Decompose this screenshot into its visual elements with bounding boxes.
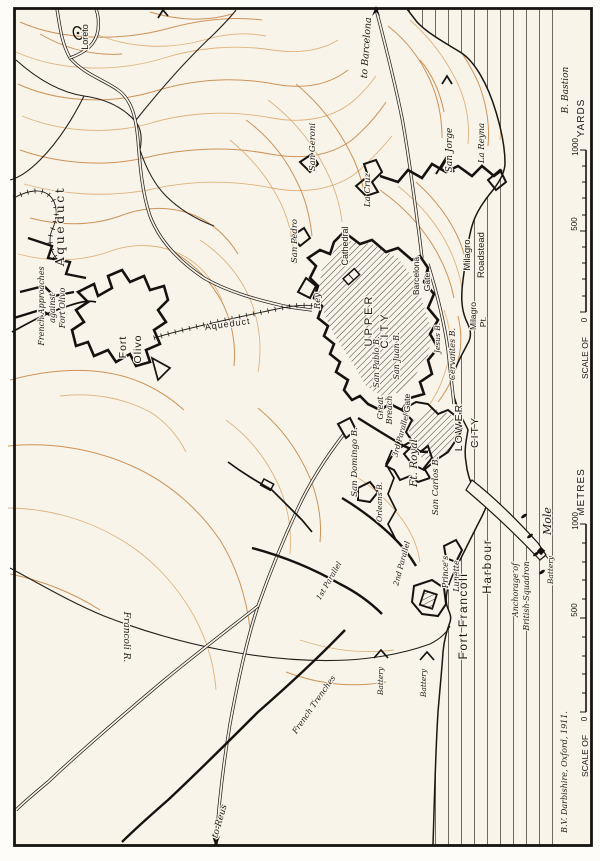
metres-tick-500: 500: [570, 603, 579, 617]
label-san-pedro: San Pedro: [290, 219, 300, 263]
label-harbour: Harbour: [482, 538, 494, 594]
map-plate: Loreto to Barcelona San Geroni San Pedro…: [0, 0, 600, 861]
tarragona-siege-map: Loreto to Barcelona San Geroni San Pedro…: [0, 0, 600, 861]
label-anchorage-1: Anchorage of: [511, 561, 520, 618]
label-ft-royal: Ft. Royal: [408, 439, 420, 488]
label-la-cruz: La Cruz: [363, 173, 373, 208]
yards-title: YARDS: [576, 99, 587, 138]
label-mole: Mole: [541, 507, 554, 536]
label-fort-francoli: Fort Francoli: [456, 573, 470, 660]
label-barcelona-gate-1: Barcelona: [411, 257, 421, 296]
label-milagro-pt-1: Milagro: [468, 302, 478, 330]
label-lower-city: CITY: [469, 416, 481, 448]
label-lower: LOWER: [453, 403, 465, 452]
metres-tick-0: 0: [580, 716, 589, 721]
metres-title: METRES: [576, 468, 587, 516]
label-battery-1: Battery: [376, 666, 385, 696]
label-jesus: Jesus B.: [433, 323, 442, 355]
label-gate: Gate: [402, 394, 412, 413]
label-cathedral: Cathedral: [340, 226, 350, 265]
label-battery-2: Battery: [419, 668, 428, 698]
yards-tick-1000: 1000: [571, 138, 580, 156]
label-francoli-river: Francoli R.: [121, 611, 131, 663]
label-cervantes: Cervantes B.: [448, 328, 457, 380]
label-great-breach-2: Breach: [385, 396, 394, 426]
label-rey: Rey: [313, 293, 323, 310]
label-san-jorge: San Jorge: [445, 128, 455, 173]
map-credit: B.V. Darbishire, Oxford, 1911.: [560, 711, 569, 834]
label-loreto: Loreto: [80, 24, 90, 50]
label-san-pablo: San Pablo B.: [372, 336, 381, 387]
yards-tick-0: 0: [580, 317, 589, 322]
metres-tick-1000: 1000: [571, 512, 580, 530]
label-san-carlos: San Carlos B.: [431, 457, 441, 516]
label-french-approaches-2: against: [48, 292, 57, 322]
label-milagro-roadstead-2: Roadstead: [476, 232, 487, 278]
label-san-geroni: San Geroni: [308, 123, 318, 172]
label-fort-olivo-1: Fort: [117, 336, 129, 359]
label-battery-mole: Battery: [546, 555, 555, 585]
yards-tick-500: 500: [570, 217, 579, 231]
label-milagro-pt-2: Pt.: [478, 317, 488, 327]
loreto-chapel-dot: [77, 32, 80, 35]
metres-scale-label: SCALE OF: [580, 735, 590, 777]
label-fort-olivo-2: Olivo: [132, 335, 144, 364]
label-milagro-roadstead-1: Milagro: [462, 239, 473, 270]
label-legend-note: B. Bastion: [561, 66, 571, 114]
label-french-approaches-3: Fort Olivo: [58, 288, 67, 330]
label-barcelona-gate-2: Gate: [422, 273, 432, 292]
label-orleans: Orleans B.: [375, 482, 384, 522]
yards-scale-label: SCALE OF: [580, 337, 590, 379]
label-anchorage-2: British Squadron: [522, 561, 531, 631]
label-princes-lunette-1: Prince's: [441, 556, 450, 589]
label-san-domingo: San Domingo B.: [350, 427, 360, 496]
label-great-breach-1: Great: [376, 396, 385, 420]
label-french-approaches-1: French Approaches: [37, 266, 46, 346]
label-san-juan: San Juan B.: [392, 332, 401, 379]
label-aqueduct-main: Aqueduct: [52, 186, 67, 268]
label-la-reyna: La Reyna: [477, 123, 487, 164]
